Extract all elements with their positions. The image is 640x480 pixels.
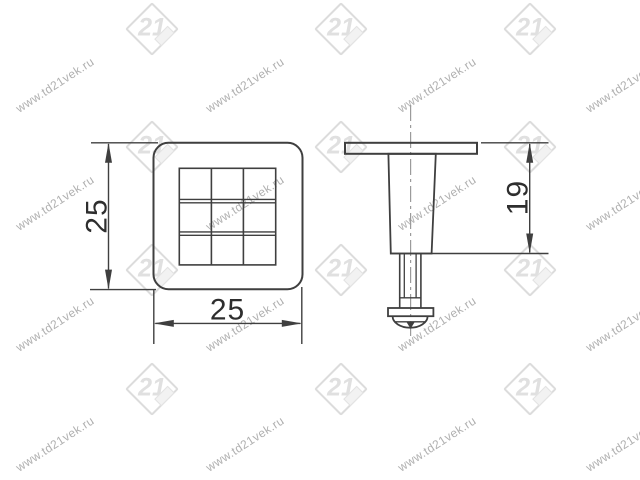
arrowhead-down xyxy=(105,270,112,290)
arrowhead-up-19 xyxy=(526,143,533,163)
arrowhead-right xyxy=(282,320,302,327)
knob-face-outline xyxy=(154,143,303,289)
front-view xyxy=(154,143,303,289)
front-height-label: 25 xyxy=(81,198,114,233)
drawing-canvas: www.td21vek.ruwww.td21vek.ruwww.td21vek.… xyxy=(0,0,640,480)
knob-grid-border xyxy=(179,168,275,265)
knob-body-side xyxy=(388,154,435,254)
technical-drawing: 25 25 xyxy=(0,0,640,480)
front-width-label: 25 xyxy=(210,294,245,327)
side-view xyxy=(345,105,549,336)
arrowhead-up xyxy=(105,143,112,163)
arrowhead-down-19 xyxy=(526,234,533,254)
arrowhead-left xyxy=(154,320,174,327)
side-height-label: 19 xyxy=(502,180,535,215)
